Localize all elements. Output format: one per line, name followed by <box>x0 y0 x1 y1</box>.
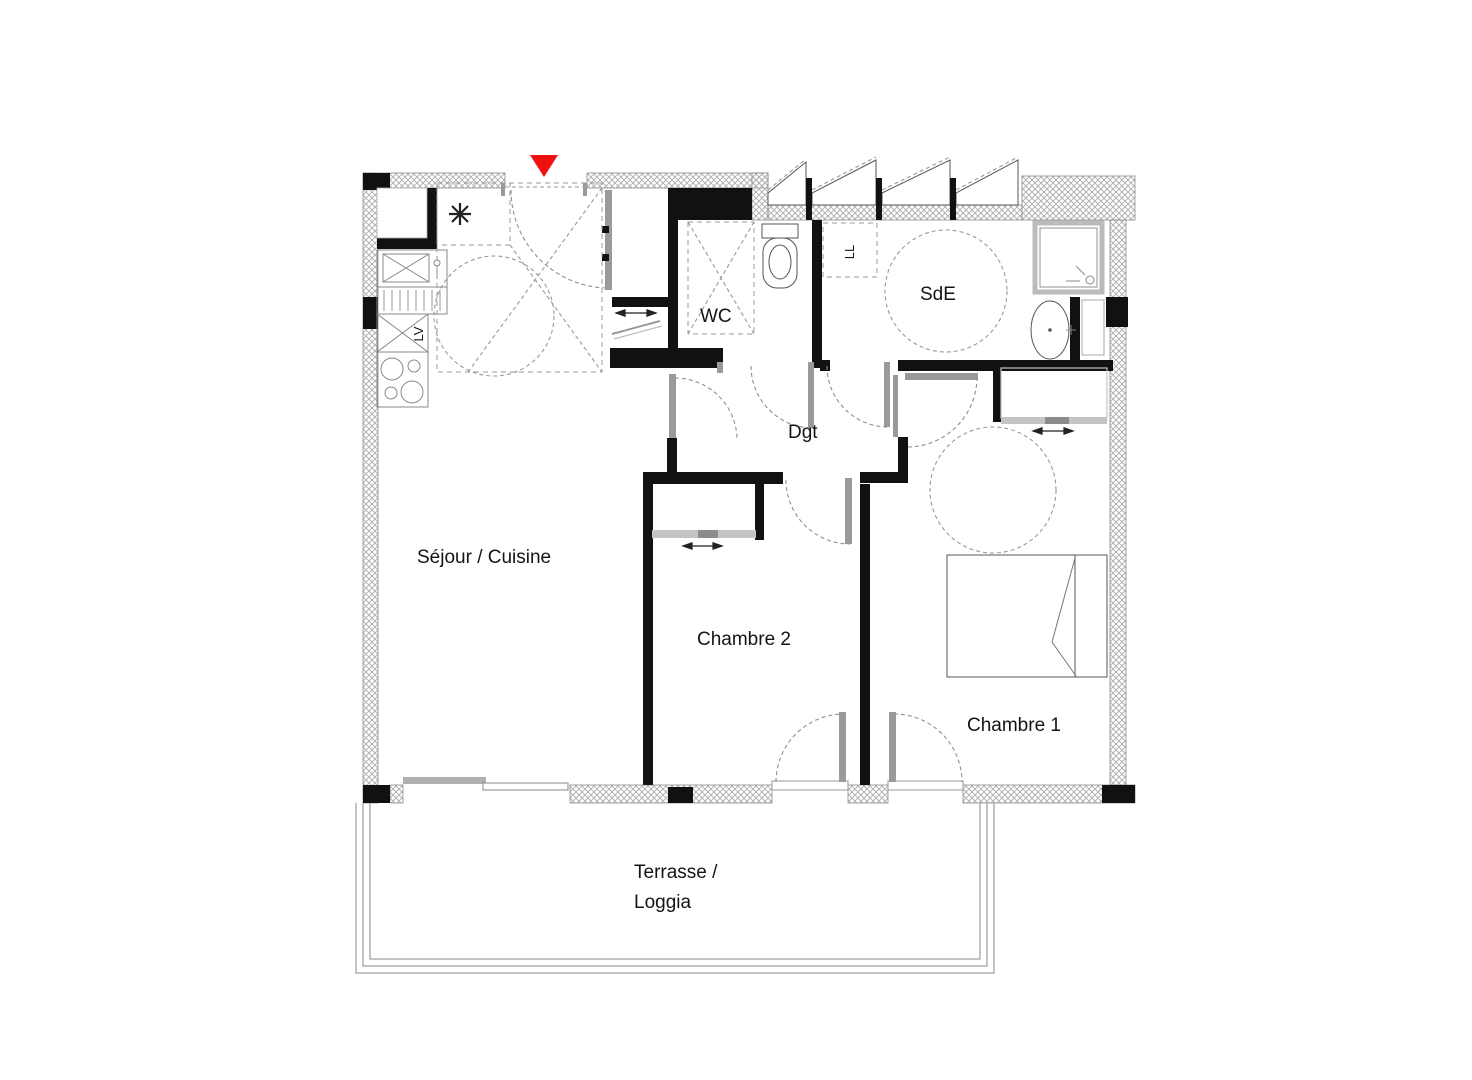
entrance-door-leaf <box>605 190 612 290</box>
entrance-marker <box>530 155 558 177</box>
sliding-panel <box>403 777 486 784</box>
sliding-arrow <box>616 310 656 316</box>
bed <box>947 555 1107 677</box>
floor-plan-page: Séjour / Cuisine Chambre 2 Chambre 1 WC … <box>0 0 1472 1080</box>
room-label-wc: WC <box>700 306 732 327</box>
chambre1-door-leaf <box>893 375 898 437</box>
chambre2-door-leaf <box>845 478 852 544</box>
exterior-walls <box>363 173 1135 803</box>
room-label-sde: SdE <box>920 284 956 305</box>
sanitary-fixtures <box>688 222 1104 359</box>
corner-block <box>363 785 390 803</box>
sliding-arrow <box>683 543 722 549</box>
door-jamb <box>583 183 587 196</box>
wc-door-leaf <box>808 362 814 428</box>
sliding-panel <box>483 783 568 790</box>
wall-block <box>363 297 378 329</box>
closet-recess <box>1001 368 1107 418</box>
chambre1-door-open <box>905 373 978 380</box>
room-label-terrasse-1: Terrasse / <box>634 862 718 883</box>
window-mullion <box>950 178 956 220</box>
bath-cabinet <box>1082 300 1104 355</box>
glazed-door-sill <box>888 781 963 790</box>
terrace-outline <box>356 803 994 973</box>
wall-block <box>1106 297 1128 327</box>
terrace-door-leaf <box>889 712 896 782</box>
room-label-dgt: Dgt <box>788 422 818 443</box>
corner-block <box>363 173 390 190</box>
toilet-tank <box>762 224 798 238</box>
glazed-door-sill <box>772 781 848 790</box>
corner-block <box>1102 785 1135 803</box>
room-label-chambre2: Chambre 2 <box>697 629 791 650</box>
window-mullion <box>806 178 812 220</box>
label-dishwasher: LV <box>411 326 426 341</box>
interior-walls <box>377 188 1113 785</box>
entrance-door-swing <box>511 190 609 288</box>
floor-plan-svg: Séjour / Cuisine Chambre 2 Chambre 1 WC … <box>0 0 1472 1080</box>
room-label-terrasse-2: Loggia <box>634 892 691 913</box>
door-jamb <box>501 183 505 196</box>
window-mullion <box>876 178 882 220</box>
shower <box>1035 223 1102 292</box>
wall-block <box>668 787 693 803</box>
sliding-arrow <box>1033 428 1073 434</box>
room-label-sejour: Séjour / Cuisine <box>417 547 551 568</box>
sde-door-leaf <box>884 362 890 427</box>
room-label-chambre1: Chambre 1 <box>967 715 1061 736</box>
terrace-door-leaf <box>839 712 846 782</box>
door-jamb <box>717 362 723 373</box>
utility-closet <box>377 188 427 238</box>
kitchen-unit <box>377 188 471 407</box>
label-washing-machine: LL <box>842 245 857 259</box>
sejour-door-leaf <box>669 374 676 438</box>
water-heater-icon <box>449 203 471 225</box>
